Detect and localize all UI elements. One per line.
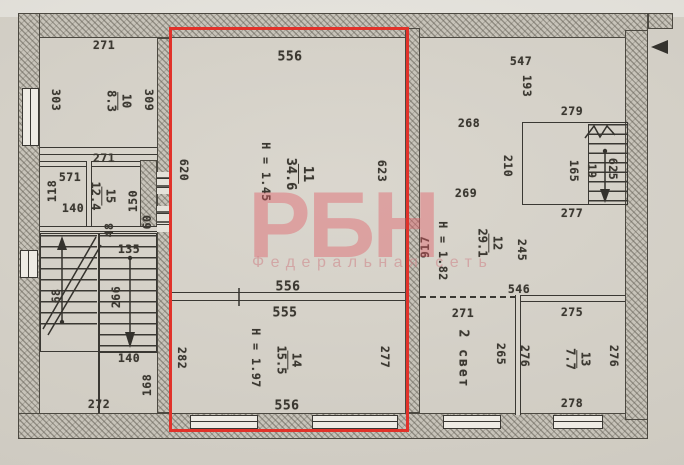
wall-outer-right [625,30,648,420]
dim-label: 571 [59,170,81,184]
room-label-10: 10 8.3 [104,90,133,112]
dim-label: 271 [93,151,115,165]
dim-label: 193 [520,75,534,97]
north-arrow-mark [651,40,668,54]
room-number: 12 [489,234,504,252]
room-area: 8.3 [104,90,118,112]
room-area: 7.7 [563,348,577,370]
dim-label: 272 [88,397,110,411]
dim-label: 269 [455,186,477,200]
dim-label: 303 [49,89,63,111]
dim-label: 265 [494,343,508,365]
dim-label: 135 [118,242,140,256]
room-number: 15 [102,187,117,205]
window-left-stairhall [20,250,38,278]
dim-label: 165 [567,160,581,182]
room-number: 10 [118,92,133,110]
dim-label: 275 [561,305,583,319]
dim-label: 309 [142,89,156,111]
dim-label: 625 [606,158,620,180]
dim-label: 140 [62,201,84,215]
dim-label: 60 [140,215,154,230]
dim-label: 68 [49,289,63,304]
wall-room13-top [516,295,625,302]
wall-outer-left [18,13,40,439]
dim-label: 150 [126,190,140,212]
window-bottom-room13 [553,415,603,429]
room-area: 12.4 [88,182,102,211]
dim-label: 19 [585,164,599,179]
window-bottom-svet [443,415,501,429]
staircase-lower-left-flight [41,235,97,332]
svet-label: 2 свет [456,330,471,389]
dim-label: 140 [118,351,140,365]
dim-label: 266 [109,286,123,308]
dim-label: 168 [140,374,154,396]
room-label-15: 15 12.4 [88,182,117,211]
dim-label: 279 [561,104,583,118]
dim-label: 271 [452,306,474,320]
wall-outer-top-notch [648,13,673,29]
window-left-room10 [22,88,39,146]
highlight-rectangle [169,27,409,432]
dim-label: 277 [561,206,583,220]
dim-label: 276 [518,345,532,367]
floor-plan-scan: 271 556 547 279 268 269 277 271 571 140 … [0,0,684,465]
dim-label: 48 [102,223,116,238]
dim-label: 210 [501,155,515,177]
dim-label: 271 [93,38,115,52]
dim-label: 546 [508,282,530,296]
dim-label: 278 [561,396,583,410]
dim-label: 268 [458,116,480,130]
dim-label: 276 [607,345,621,367]
room-number: 13 [577,350,592,368]
room-label-13: 13 7.7 [563,348,592,370]
dim-label: 245 [515,239,529,261]
wall-svet-dashed [420,296,516,298]
dim-label: 118 [45,180,59,202]
dim-label: 547 [510,54,532,68]
